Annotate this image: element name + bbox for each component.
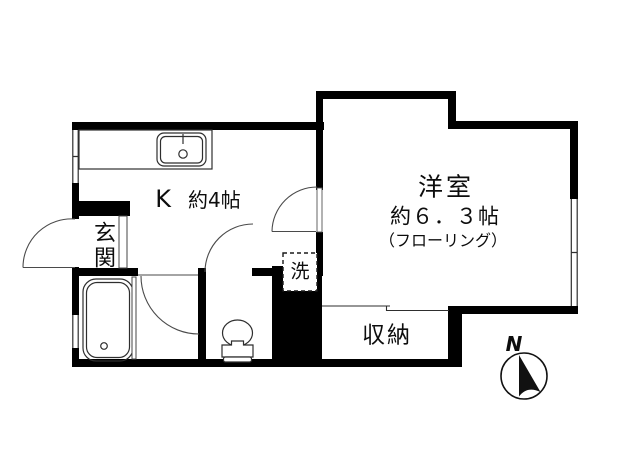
kitchen-sink xyxy=(157,133,206,166)
wall-left-seg4 xyxy=(72,348,79,367)
wall-storage-right xyxy=(448,306,462,367)
wall-kitchen-room-divider xyxy=(316,91,323,190)
wall-right-upper xyxy=(570,121,578,199)
wall-left-seg1 xyxy=(72,122,79,130)
tub-drain-icon xyxy=(101,343,108,350)
door-entrance xyxy=(23,219,75,268)
sink-drain-icon xyxy=(179,150,187,158)
wall-kitchen-top xyxy=(72,122,324,130)
toilet-tank xyxy=(222,341,253,357)
wall-room-top-right xyxy=(448,121,578,129)
wall-toilet-left xyxy=(198,268,206,360)
washing-machine-label: 洗 xyxy=(290,263,309,282)
partition-bath-washroom xyxy=(132,277,136,359)
wall-room-top-left xyxy=(316,91,456,99)
bathtub xyxy=(83,279,133,361)
toilet-base xyxy=(224,357,252,362)
floorplan-canvas: K 約4帖 洋室 約６．３帖 （フローリング） 収納 玄関 洗 N xyxy=(0,0,640,457)
compass-north-label: N xyxy=(506,334,523,354)
wall-left-seg2 xyxy=(72,183,79,219)
toilet xyxy=(222,320,253,362)
sliding-door-storage xyxy=(322,306,449,311)
wall-entrance-stub xyxy=(78,201,130,216)
door-washroom xyxy=(138,275,199,334)
kitchen-label: K 約4帖 xyxy=(155,187,240,211)
entrance-step-edge xyxy=(119,216,127,268)
western-room-name: 洋室 xyxy=(418,175,474,200)
wall-bottom-right xyxy=(455,306,578,314)
window-room-right xyxy=(571,199,577,306)
wall-toilet-top-right xyxy=(252,268,272,276)
western-room-area: 約６．３帖 xyxy=(390,207,500,228)
entrance-label: 玄関 xyxy=(91,221,113,271)
wall-bottom-left xyxy=(72,359,462,367)
western-room-flooring: （フローリング） xyxy=(379,233,507,249)
compass xyxy=(501,353,547,399)
window-kitchen-left xyxy=(73,130,78,183)
kitchen-area: 約4帖 xyxy=(188,190,241,210)
kitchen-name: K xyxy=(155,187,172,211)
outer-walls xyxy=(72,91,578,367)
door-kitchen-to-room xyxy=(272,187,322,232)
window-bath-left xyxy=(73,315,78,348)
kitchen-counter xyxy=(79,130,212,169)
storage-label: 収納 xyxy=(362,325,412,348)
door-toilet xyxy=(205,224,253,272)
